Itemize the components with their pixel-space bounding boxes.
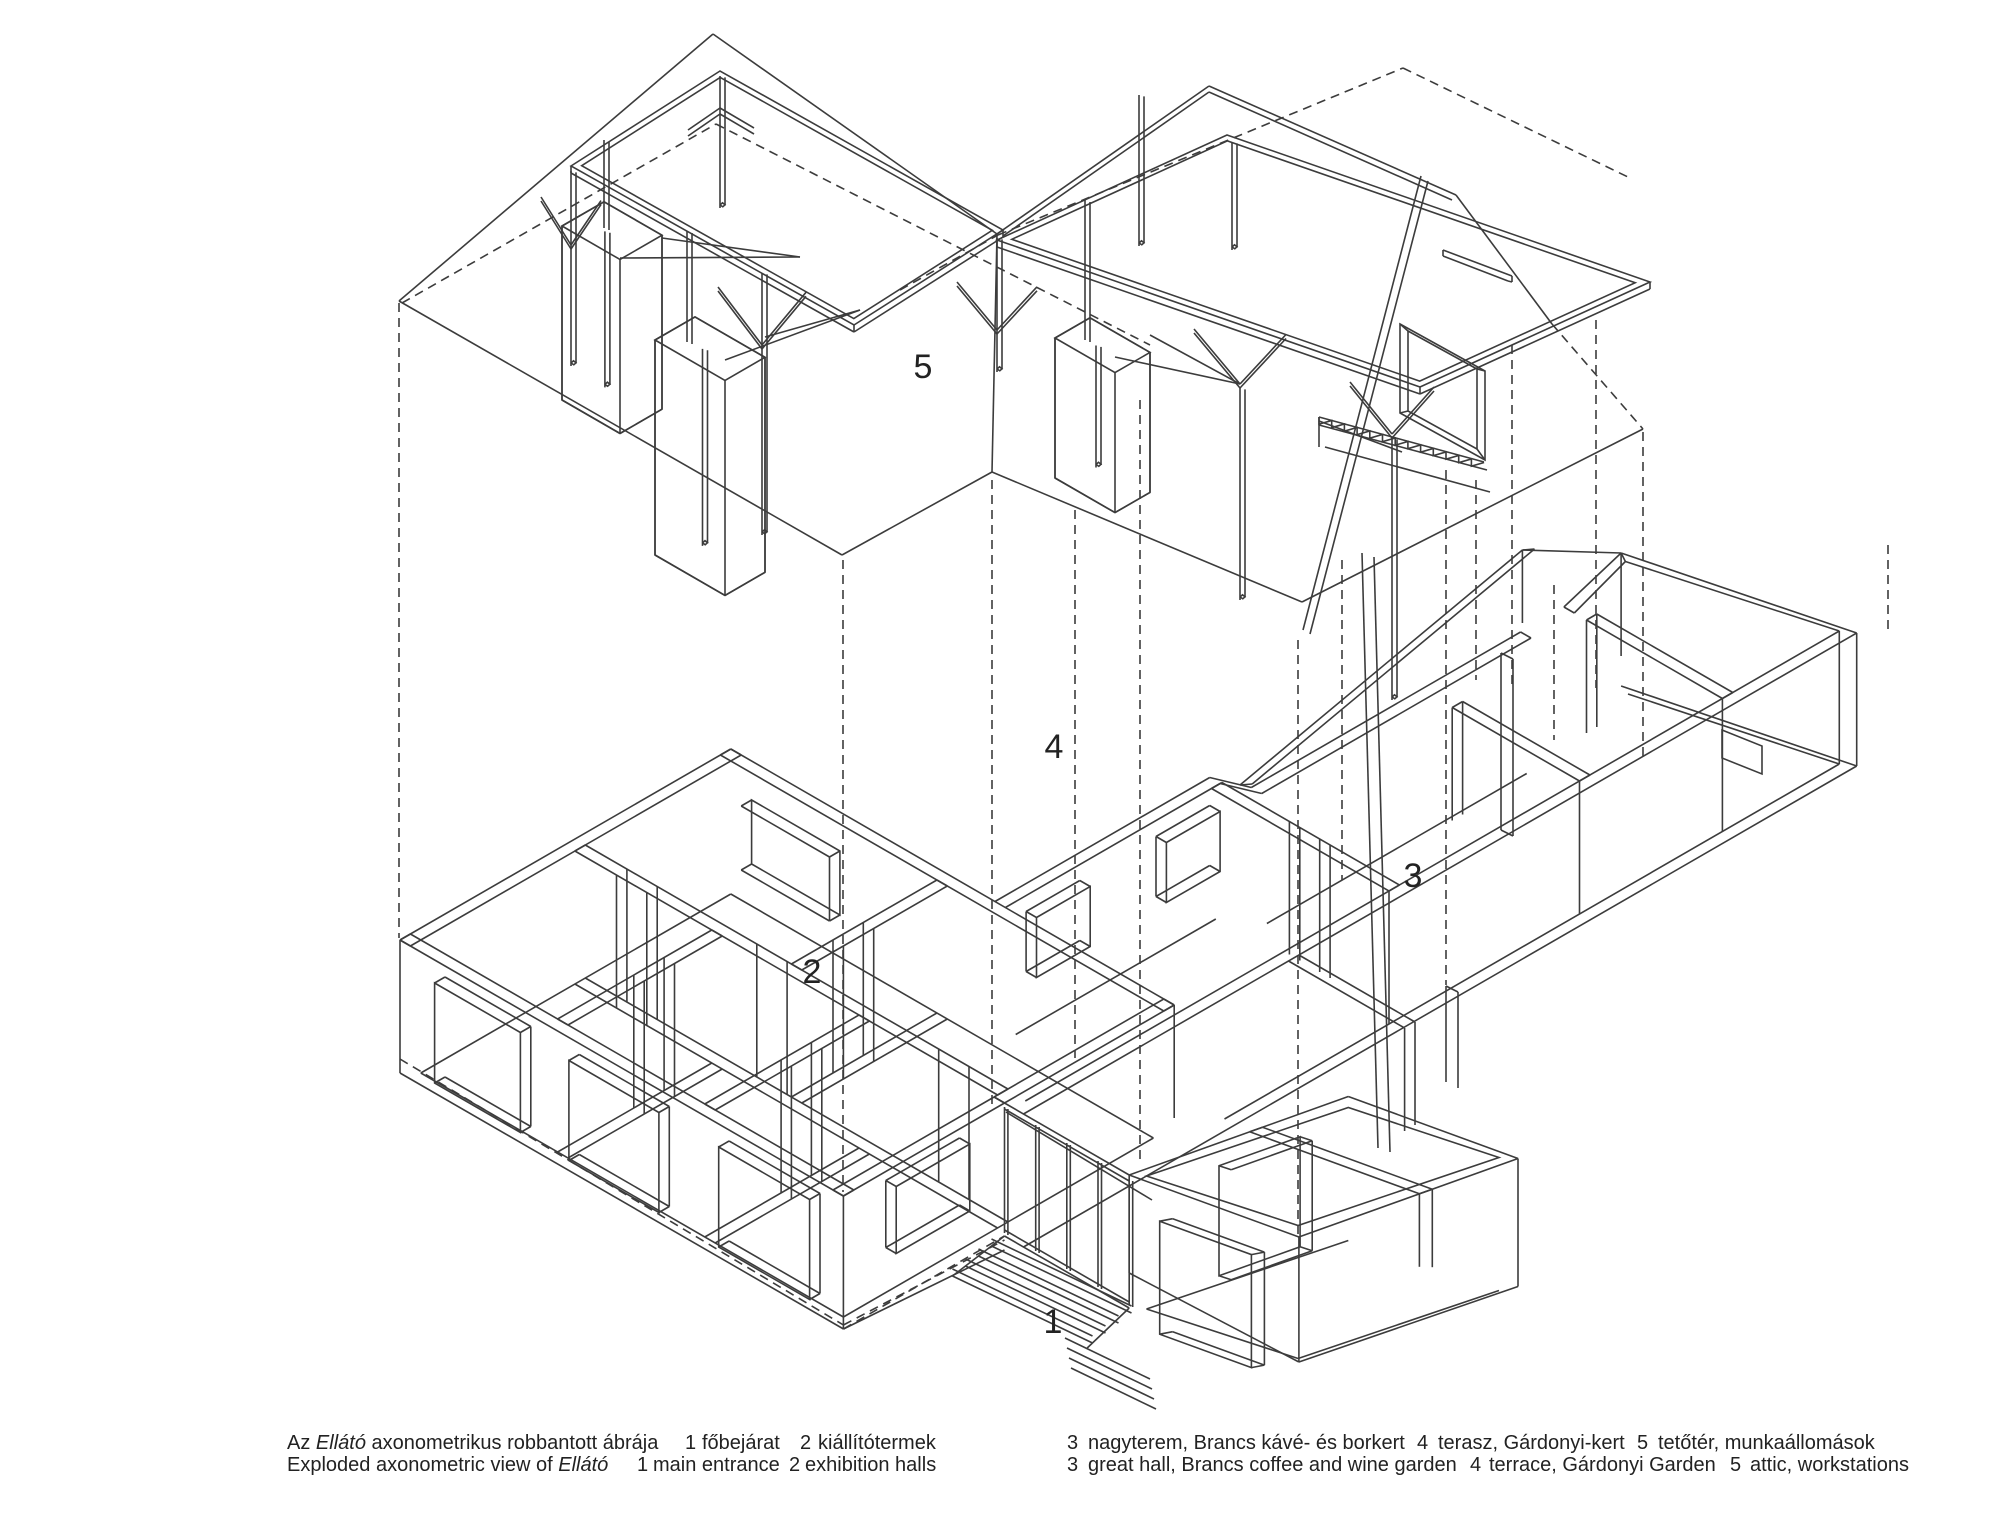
svg-text:2: 2: [800, 1432, 811, 1454]
svg-text:terrace, Gárdonyi Garden: terrace, Gárdonyi Garden: [1489, 1454, 1716, 1476]
svg-text:kiállítótermek: kiállítótermek: [818, 1432, 937, 1454]
svg-text:tetőtér, munkaállomások: tetőtér, munkaállomások: [1658, 1432, 1876, 1454]
svg-text:5: 5: [1730, 1454, 1741, 1476]
svg-text:1: 1: [685, 1432, 696, 1454]
svg-text:attic, workstations: attic, workstations: [1750, 1454, 1909, 1476]
svg-text:3: 3: [1067, 1454, 1078, 1476]
svg-text:4: 4: [1470, 1454, 1481, 1476]
svg-text:4: 4: [1417, 1432, 1428, 1454]
svg-text:3: 3: [1404, 857, 1423, 895]
svg-text:main entrance: main entrance: [653, 1454, 780, 1476]
svg-text:főbejárat: főbejárat: [702, 1432, 780, 1454]
svg-text:1: 1: [1044, 1303, 1063, 1341]
svg-text:5: 5: [1637, 1432, 1648, 1454]
svg-text:Exploded axonometric view of E: Exploded axonometric view of Ellátó: [287, 1454, 608, 1476]
svg-text:exhibition halls: exhibition halls: [805, 1454, 936, 1476]
svg-text:4: 4: [1045, 728, 1064, 766]
svg-text:5: 5: [914, 348, 933, 386]
svg-text:terasz, Gárdonyi-kert: terasz, Gárdonyi-kert: [1438, 1432, 1625, 1454]
svg-text:nagyterem, Brancs kávé- és bor: nagyterem, Brancs kávé- és borkert: [1088, 1432, 1405, 1454]
svg-text:great hall, Brancs coffee and: great hall, Brancs coffee and wine garde…: [1088, 1454, 1457, 1476]
svg-text:3: 3: [1067, 1432, 1078, 1454]
svg-text:1: 1: [637, 1454, 648, 1476]
svg-text:2: 2: [803, 953, 822, 991]
svg-text:2: 2: [789, 1454, 800, 1476]
svg-text:Az Ellátó axonometrikus robban: Az Ellátó axonometrikus robbantott ábráj…: [287, 1432, 659, 1454]
